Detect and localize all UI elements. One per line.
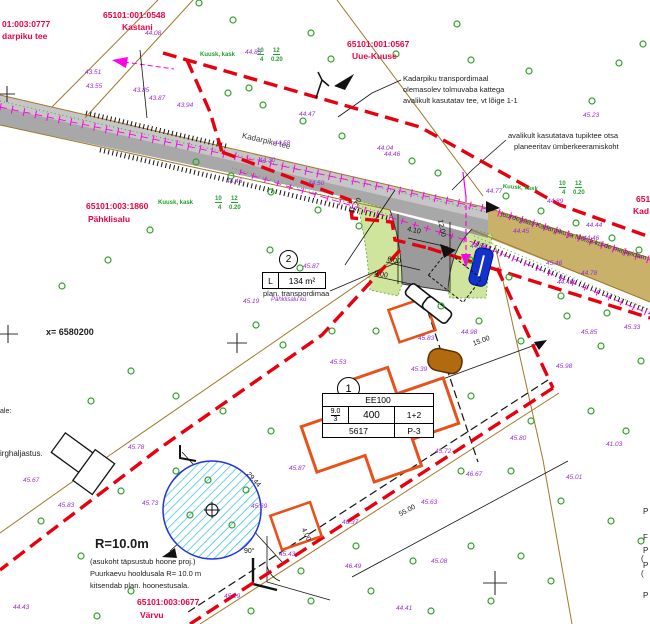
elevation-label: 45.73 xyxy=(142,501,158,508)
spec-code: EE100 xyxy=(323,394,433,407)
tree-icon xyxy=(608,518,614,524)
elevation-label: 45.87 xyxy=(303,264,319,271)
magenta-arrow-west xyxy=(112,57,128,68)
tree-icon xyxy=(638,358,644,364)
tree-icon xyxy=(328,56,334,62)
annotation-text: R=10.0m xyxy=(95,537,149,551)
spec-units: 1+2 xyxy=(395,407,433,424)
tree-icon xyxy=(308,30,314,36)
elevation-label: 44.41 xyxy=(396,606,412,613)
tree-icon xyxy=(564,313,570,319)
tree-label: 4 xyxy=(260,57,263,63)
tree-icon xyxy=(538,208,544,214)
elevation-label: 43.55 xyxy=(86,84,102,91)
tree-icon xyxy=(435,170,441,176)
existing-building xyxy=(45,430,114,495)
annotation-text: irghaljastus. xyxy=(0,450,43,458)
tree-icon xyxy=(105,257,111,263)
elevation-label: 44.45 xyxy=(513,229,529,236)
tree-label: 10 xyxy=(215,196,222,203)
tree-icon xyxy=(173,393,179,399)
area-box: L 134 m² xyxy=(262,272,326,289)
tree-icon xyxy=(118,488,124,494)
tree-icon xyxy=(468,543,474,549)
tree-icon xyxy=(588,408,594,414)
parcel-label: 651 xyxy=(636,195,650,204)
tree-icon xyxy=(298,568,304,574)
elevation-label: 45.46 xyxy=(546,261,562,268)
plan-linework xyxy=(0,0,650,624)
annotation-text: avalikult kasutatava tupiktee otsa xyxy=(508,132,618,140)
tree-icon xyxy=(454,21,460,27)
tree-label: 12 xyxy=(575,181,582,188)
annotation-text: Kadarpiku transpordimaal xyxy=(403,75,488,83)
elevation-label: 45.87 xyxy=(289,466,305,473)
elevation-label: 45.01 xyxy=(566,475,582,482)
tree-icon xyxy=(78,553,84,559)
elevation-label: 44.50 xyxy=(308,181,324,188)
branch-symbol xyxy=(316,72,329,98)
tree-label: Kuusk, kask xyxy=(200,52,235,58)
tree-icon xyxy=(128,368,134,374)
tree-label: 4 xyxy=(218,205,221,211)
elevation-label: 43.51 xyxy=(85,70,101,77)
tree-icon xyxy=(225,90,231,96)
elevation-label: 45.98 xyxy=(556,364,572,371)
spec-position: P-3 xyxy=(395,424,433,437)
elevation-label: 46.49 xyxy=(345,564,361,571)
elevation-label: 44.47 xyxy=(299,112,315,119)
tree-icon xyxy=(558,498,564,504)
elevation-label: 44.48 xyxy=(557,280,573,287)
tree-icon xyxy=(246,85,252,91)
elevation-label: 45.29 xyxy=(224,594,240,601)
tree-icon xyxy=(220,408,226,414)
tree-label: 0.20 xyxy=(271,57,283,63)
annotation-text: P xyxy=(643,592,648,600)
elevation-label: 44.58 xyxy=(274,141,290,148)
elevation-label: 44.43 xyxy=(13,605,29,612)
tree-icon xyxy=(280,342,286,348)
area-box-value: 134 m² xyxy=(279,273,325,288)
elevation-label: 45.39 xyxy=(411,367,427,374)
parcel-label: Värvu xyxy=(140,611,164,620)
elevation-label: 44.77 xyxy=(486,189,502,196)
tree-icon xyxy=(267,247,273,253)
tree-icon xyxy=(616,60,622,66)
elevation-label: 45.78 xyxy=(128,445,144,452)
elevation-label: 45.08 xyxy=(431,559,447,566)
elevation-label: 46.67 xyxy=(466,472,482,479)
spec-table: EE100 9.0 3 400 1+2 5617 P-3 xyxy=(322,393,434,438)
annotation-text: (asukoht täpsustub hoone proj.) xyxy=(90,558,195,566)
parcel-label: Uue-Kuuse xyxy=(352,52,397,61)
tree-label: 12 xyxy=(273,48,280,55)
tree-icon xyxy=(476,318,482,324)
elevation-label: 45.33 xyxy=(624,325,640,332)
elevation-label: 44.08 xyxy=(145,31,161,38)
elevation-label: 44.44 xyxy=(586,223,602,230)
tree-icon xyxy=(598,343,604,349)
tree-icon xyxy=(373,328,379,334)
annotation-text: F xyxy=(643,534,648,542)
parcel-label: 01:003:0777 xyxy=(2,20,50,29)
parcel-label: Pähklisalu xyxy=(88,215,130,224)
tree-icon xyxy=(409,158,415,164)
tree-icon xyxy=(508,468,514,474)
annotation-text: planeeritav ümberkeeramiskoht xyxy=(514,143,619,151)
parcel-label: darpiku tee xyxy=(2,32,47,41)
tree-icon xyxy=(253,322,259,328)
elevation-label: 45.23 xyxy=(583,113,599,120)
tree-label: 0.20 xyxy=(229,205,241,211)
elevation-label: 46.37 xyxy=(342,520,358,527)
cadastral-lines-tan xyxy=(0,0,650,624)
tree-icon xyxy=(147,227,153,233)
tree-icon xyxy=(410,558,416,564)
tree-icon xyxy=(353,543,359,549)
elevation-label: 44.30 xyxy=(259,158,275,165)
tree-icon xyxy=(248,608,254,614)
elevation-label: 45.72 xyxy=(435,449,451,456)
tree-icon xyxy=(640,41,646,47)
parcel-label: 65101:003:0677 xyxy=(137,598,199,607)
tree-icon xyxy=(589,98,595,104)
tree-icon xyxy=(548,578,554,584)
tree-icon xyxy=(94,613,100,619)
elevation-label: 44.46 xyxy=(226,179,242,186)
area-badge: 2 xyxy=(279,250,298,269)
elevation-label: 43.85 xyxy=(133,88,149,95)
tree-icon xyxy=(518,553,524,559)
elevation-label: 41.03 xyxy=(606,442,622,449)
tree-icon xyxy=(315,207,321,213)
elevation-label: 45.19 xyxy=(243,299,259,306)
elevation-label: 44.88 xyxy=(470,244,486,251)
tree-icon xyxy=(526,68,532,74)
existing-boundaries-dashed xyxy=(180,288,548,612)
tree-icon xyxy=(196,0,202,6)
tree-icon xyxy=(329,328,335,334)
elevation-label: 45.53 xyxy=(330,360,346,367)
tree-icon xyxy=(428,608,434,614)
tree-icon xyxy=(268,428,274,434)
elevation-label: 44.98 xyxy=(461,330,477,337)
tree-icon xyxy=(604,310,610,316)
tree-icon xyxy=(356,223,362,229)
elevation-label: 45.43 xyxy=(279,552,295,559)
elevation-label: 45.80 xyxy=(510,436,526,443)
tree-icon xyxy=(458,468,464,474)
tree-icon xyxy=(558,293,564,299)
parcel-label: Kad xyxy=(633,207,649,216)
elevation-label: 45.67 xyxy=(23,478,39,485)
annotation-text: P xyxy=(643,508,648,516)
tree-icon xyxy=(528,418,534,424)
annotation-text: ale: xyxy=(0,408,11,415)
spec-plot-size: 5617 xyxy=(323,424,395,437)
tree-icon xyxy=(308,598,314,604)
elevation-label: 45.63 xyxy=(421,500,437,507)
elevation-label: Pähklisalu kü xyxy=(271,297,306,303)
tree-icon xyxy=(173,468,179,474)
spec-storeys: 3 xyxy=(331,416,341,423)
annotation-text: avalikult kasutatav tee, vt lõige 1-1 xyxy=(403,97,518,105)
tree-label: Kuusk, kask xyxy=(158,200,193,206)
elevation-label: 45.83 xyxy=(418,336,434,343)
tree-icon xyxy=(468,57,474,63)
tree-label: 10 xyxy=(559,181,566,188)
tree-icon xyxy=(368,588,374,594)
spec-area: 400 xyxy=(349,407,395,424)
tree-icon xyxy=(339,133,345,139)
site-plan-canvas: 01:003:0777darpiku tee65101:001:0548Kast… xyxy=(0,0,650,624)
tree-icon xyxy=(609,235,615,241)
tree-icon xyxy=(268,189,274,195)
parcel-label: 65101:001:0548 xyxy=(103,11,165,20)
tree-icon xyxy=(230,17,236,23)
tree-icon xyxy=(300,118,306,124)
area-box-label: L xyxy=(263,273,279,288)
dimension-label: 90° xyxy=(244,548,255,555)
tree-icon xyxy=(573,220,579,226)
tree-icon xyxy=(468,393,474,399)
tree-icon xyxy=(503,193,509,199)
direction-arrow-nw xyxy=(334,74,354,90)
annotation-text: olemasolev tolmuvaba kattega xyxy=(403,86,504,94)
spec-height: 9.0 xyxy=(331,408,341,416)
tree-icon xyxy=(88,398,94,404)
spec-height-storeys: 9.0 3 xyxy=(323,407,349,424)
elevation-label: 43.94 xyxy=(177,103,193,110)
annotation-text: kitsendab plan. hoonestusala. xyxy=(90,582,189,590)
elevation-label: 44.89 xyxy=(547,199,563,206)
tree-icon xyxy=(623,428,629,434)
elevation-label: 45.85 xyxy=(581,330,597,337)
elevation-label: 44.46 xyxy=(384,152,400,159)
elevation-label: 44.78 xyxy=(581,271,597,278)
tree-icon xyxy=(260,102,266,108)
shed-symbol xyxy=(426,347,464,376)
parcel-label: 65101:001:0567 xyxy=(347,40,409,49)
tree-icon xyxy=(38,518,44,524)
elevation-label: 45.69 xyxy=(251,504,267,511)
elevation-label: 45.83 xyxy=(58,503,74,510)
elevation-label: 44.85 xyxy=(245,50,261,57)
tree-icon xyxy=(59,283,65,289)
annotation-text: ( xyxy=(641,570,644,578)
car-symbol-outline-2 xyxy=(421,295,453,325)
elevation-label: 44.46 xyxy=(583,236,599,243)
elevation-label: 43.87 xyxy=(149,96,165,103)
tree-label: 12 xyxy=(231,196,238,203)
parcel-label: 65101:003:1860 xyxy=(86,202,148,211)
annotation-text: x= 6580200 xyxy=(46,328,94,337)
annotation-text: Puurkaevu hooldusala R= 10.0 m xyxy=(90,570,201,578)
tree-label: 0.20 xyxy=(573,190,585,196)
tree-icon xyxy=(518,338,524,344)
tree-label: 4 xyxy=(562,190,565,196)
tree-icon xyxy=(488,598,494,604)
